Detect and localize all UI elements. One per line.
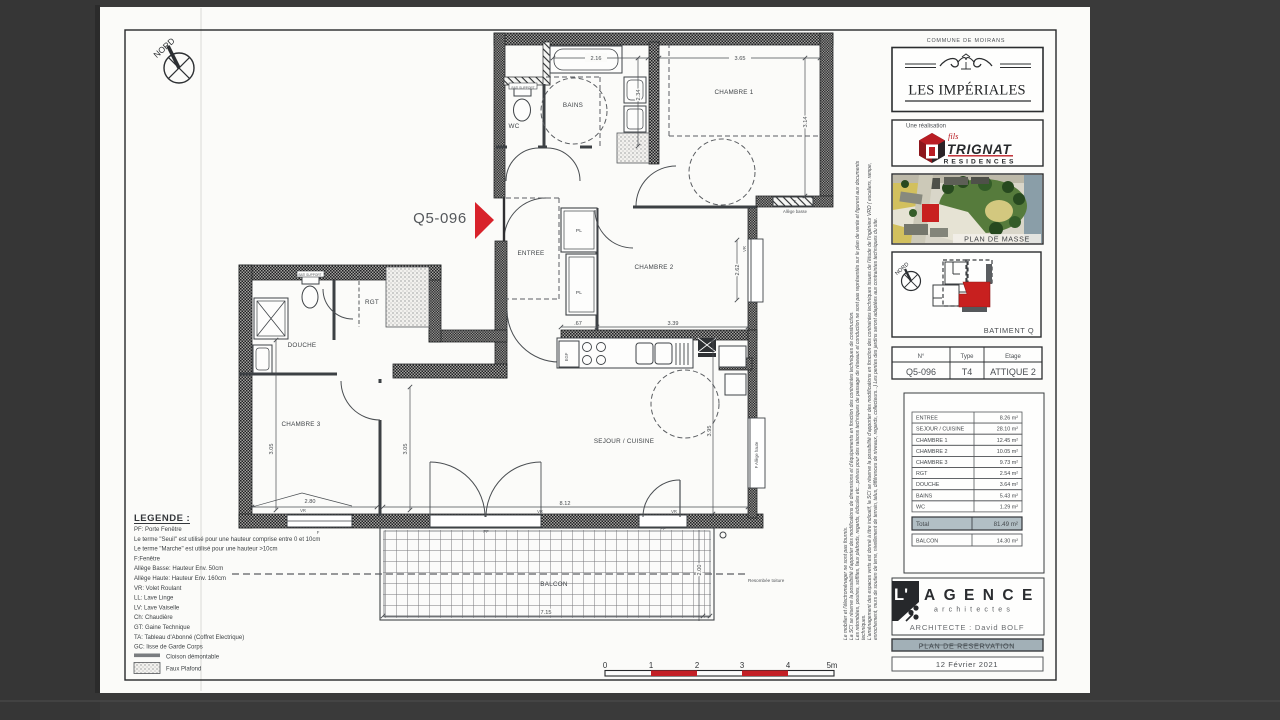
svg-text:CHAMBRE 2: CHAMBRE 2 — [916, 449, 947, 455]
svg-text:4: 4 — [786, 661, 791, 670]
svg-text:LEGENDE :: LEGENDE : — [134, 513, 190, 524]
svg-text:Allège basse: Allège basse — [783, 209, 808, 214]
svg-text:28.10 m²: 28.10 m² — [997, 427, 1018, 433]
svg-text:F:Fenêtre: F:Fenêtre — [134, 556, 161, 562]
svg-text:PF: PF — [483, 529, 489, 534]
svg-text:Allège Haute: Hauteur Env. 160: Allège Haute: Hauteur Env. 160cm — [134, 576, 226, 582]
svg-text:3.05: 3.05 — [269, 444, 275, 455]
svg-text:3.95: 3.95 — [707, 426, 713, 437]
svg-text:BAINS: BAINS — [563, 102, 583, 109]
svg-text:0: 0 — [603, 661, 608, 670]
svg-text:14.30 m²: 14.30 m² — [997, 539, 1018, 545]
svg-text:PF: PF — [660, 526, 666, 531]
svg-text:GC: lisse de Garde Corps: GC: lisse de Garde Corps — [134, 645, 203, 651]
svg-text:TA: Tableau d'Abonné (Coffret: TA: Tableau d'Abonné (Coffret Electrique… — [134, 635, 244, 641]
svg-text:PLAN DE MASSE: PLAN DE MASSE — [964, 235, 1030, 244]
svg-text:Ch: Chaudière: Ch: Chaudière — [134, 615, 173, 621]
svg-text:fils: fils — [948, 131, 959, 141]
svg-text:2.62: 2.62 — [735, 265, 741, 276]
svg-text:ENTREE: ENTREE — [517, 250, 544, 257]
svg-text:BATI SUPPORT: BATI SUPPORT — [298, 273, 321, 277]
svg-text:VR: VR — [300, 508, 306, 513]
svg-text:Le terme "Seuil" est utilisé p: Le terme "Seuil" est utilisé pour une ha… — [134, 537, 320, 543]
svg-text:Allège Basse: Hauteur Env. 50c: Allège Basse: Hauteur Env. 50cm — [134, 566, 223, 572]
svg-text:PL: PL — [576, 228, 582, 234]
svg-text:VR: VR — [671, 509, 677, 514]
svg-text:RGT: RGT — [916, 471, 928, 477]
svg-text:VR: Volet Roulant: VR: Volet Roulant — [134, 586, 182, 592]
svg-text:VR: VR — [742, 246, 747, 252]
svg-text:BATIMENT Q: BATIMENT Q — [984, 326, 1034, 335]
svg-text:DOUCHE: DOUCHE — [288, 342, 317, 349]
svg-text:.67: .67 — [574, 321, 582, 327]
svg-text:COMMUNE DE MOIRANS: COMMUNE DE MOIRANS — [927, 38, 1006, 44]
svg-text:PL: PL — [576, 290, 582, 296]
svg-text:LL: Lave Linge: LL: Lave Linge — [134, 596, 174, 602]
svg-text:Type: Type — [960, 354, 974, 360]
svg-text:CHAMBRE 3: CHAMBRE 3 — [282, 421, 321, 428]
svg-text:Etage: Etage — [1005, 354, 1021, 360]
svg-text:2.54 m²: 2.54 m² — [1000, 471, 1018, 477]
svg-text:5m: 5m — [827, 661, 838, 670]
svg-text:BAINS: BAINS — [916, 493, 933, 499]
svg-text:2: 2 — [695, 661, 699, 670]
svg-text:CHAMBRE 3: CHAMBRE 3 — [916, 460, 947, 466]
svg-text:Les retombées, poutres, soffit: Les retombées, poutres, soffites, faux p… — [855, 160, 861, 640]
svg-text:8.12: 8.12 — [560, 501, 571, 507]
svg-text:12 Février 2021: 12 Février 2021 — [936, 660, 998, 669]
svg-text:RGT: RGT — [365, 299, 379, 306]
svg-text:2.34: 2.34 — [636, 90, 642, 101]
svg-text:T4: T4 — [962, 367, 973, 377]
svg-text:TRIGNAT: TRIGNAT — [947, 142, 1013, 157]
svg-text:RESIDENCES: RESIDENCES — [944, 159, 1017, 166]
svg-text:architectes: architectes — [934, 607, 1014, 614]
svg-text:ARCHITECTE : David BOLF: ARCHITECTE : David BOLF — [910, 623, 1025, 632]
svg-text:3.65: 3.65 — [735, 56, 746, 62]
svg-text:Total: Total — [916, 521, 929, 528]
svg-text:5.43 m²: 5.43 m² — [1000, 493, 1018, 499]
svg-text:ATTIQUE 2: ATTIQUE 2 — [990, 367, 1036, 377]
svg-text:WC: WC — [916, 504, 925, 510]
svg-text:L': L' — [894, 586, 908, 604]
svg-text:BALCON: BALCON — [916, 539, 938, 545]
svg-text:10.05 m²: 10.05 m² — [997, 449, 1018, 455]
svg-text:BATI SUPPORT: BATI SUPPORT — [511, 86, 534, 90]
svg-text:Resombée toiture: Resombée toiture — [748, 578, 785, 583]
svg-text:enrochement, murs de soutien d: enrochement, murs de soutien de terre, n… — [873, 218, 879, 640]
svg-text:8.26 m²: 8.26 m² — [1000, 416, 1018, 422]
svg-text:VR: VR — [537, 509, 543, 514]
svg-text:F: F — [317, 530, 320, 535]
svg-text:3.39: 3.39 — [668, 321, 679, 327]
svg-text:CHAMBRE 1: CHAMBRE 1 — [916, 438, 947, 444]
svg-text:1.29 m²: 1.29 m² — [1000, 504, 1018, 510]
svg-text:DOUCHE: DOUCHE — [916, 482, 940, 488]
svg-text:Le terme "Marche" est utilisé: Le terme "Marche" est utilisé pour une h… — [134, 547, 278, 553]
svg-text:SEJOUR / CUISINE: SEJOUR / CUISINE — [916, 427, 965, 433]
svg-text:81.49 m²: 81.49 m² — [994, 521, 1018, 528]
svg-text:3.64 m²: 3.64 m² — [1000, 482, 1018, 488]
svg-text:SEJOUR / CUISINE: SEJOUR / CUISINE — [594, 438, 654, 445]
svg-text:1: 1 — [649, 661, 653, 670]
svg-text:ENTREE: ENTREE — [916, 416, 938, 422]
svg-text:PF: Porte Fenêtre: PF: Porte Fenêtre — [134, 527, 182, 533]
svg-text:2.80: 2.80 — [305, 499, 316, 505]
svg-text:3.14: 3.14 — [803, 117, 809, 128]
svg-text:12.45 m²: 12.45 m² — [997, 438, 1018, 444]
svg-text:2.00: 2.00 — [697, 565, 703, 576]
svg-text:GT: Gaine Technique: GT: Gaine Technique — [134, 625, 191, 631]
svg-text:BALCON: BALCON — [540, 581, 568, 588]
svg-text:CHAMBRE 2: CHAMBRE 2 — [635, 264, 674, 271]
svg-text:9.73 m²: 9.73 m² — [1000, 460, 1018, 466]
svg-text:LES IMPÉRIALES: LES IMPÉRIALES — [908, 82, 1026, 99]
svg-text:7.15: 7.15 — [541, 610, 552, 616]
svg-text:CHAMBRE 1: CHAMBRE 1 — [715, 89, 754, 96]
svg-text:Q5-096: Q5-096 — [906, 367, 936, 377]
svg-text:N°: N° — [918, 354, 925, 360]
svg-text:2.16: 2.16 — [591, 56, 602, 62]
svg-text:3.05: 3.05 — [403, 444, 409, 455]
svg-text:AGENCE: AGENCE — [924, 587, 1041, 604]
svg-text:F Allège haute: F Allège haute — [754, 441, 759, 468]
svg-text:Q5-096: Q5-096 — [413, 210, 467, 227]
svg-text:F: F — [794, 199, 797, 204]
svg-text:Cloison démontable: Cloison démontable — [166, 654, 220, 660]
svg-text:3: 3 — [740, 661, 744, 670]
svg-text:Une réalisation: Une réalisation — [906, 124, 946, 130]
svg-text:Faux Plafond: Faux Plafond — [166, 667, 201, 673]
svg-text:EGF: EGF — [564, 352, 569, 361]
svg-text:PLAN DE RESERVATION: PLAN DE RESERVATION — [919, 642, 1015, 651]
svg-text:WC: WC — [509, 123, 520, 130]
svg-text:LV: Lave Vaiselle: LV: Lave Vaiselle — [134, 605, 180, 611]
